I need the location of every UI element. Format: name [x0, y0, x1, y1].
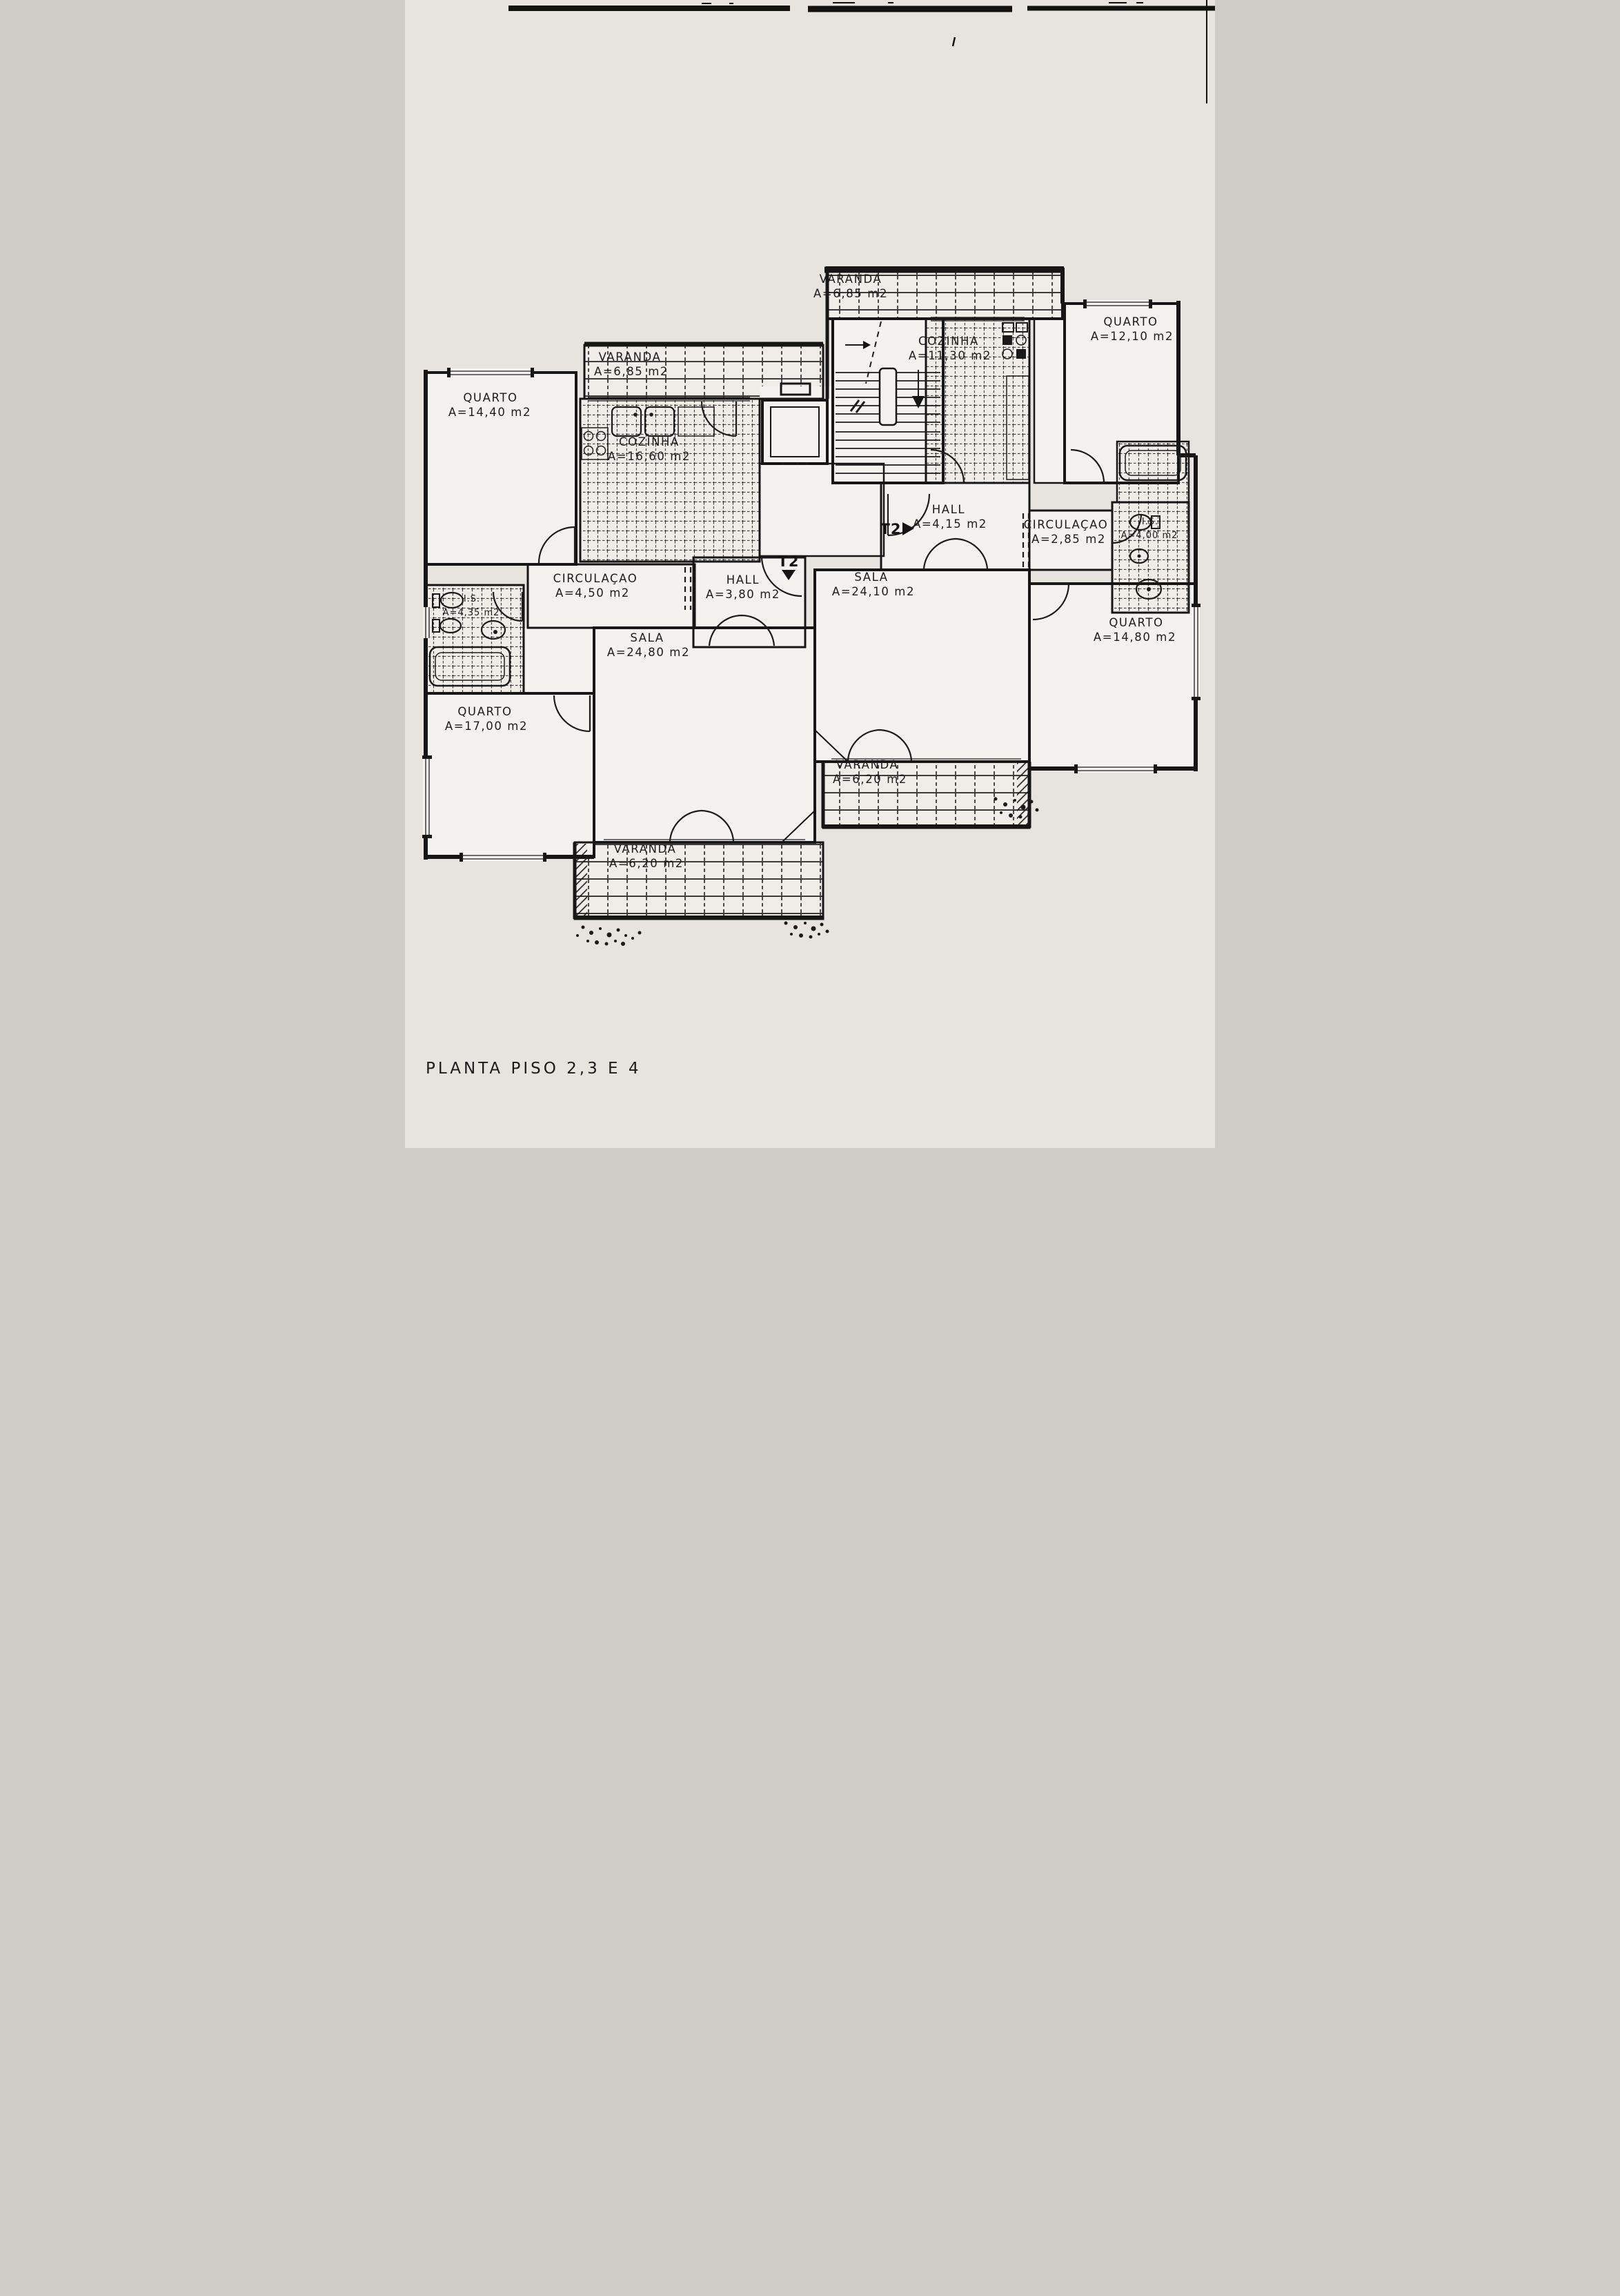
page-title: PLANTA PISO 2,3 E 4	[426, 1060, 642, 1078]
faucet-icon	[649, 413, 653, 417]
stove-icon	[1002, 335, 1012, 345]
window-quarto-14-80-bottom	[1074, 764, 1157, 773]
drain-icon	[493, 630, 497, 634]
paper-background	[405, 0, 1215, 1148]
wall-hatch	[1017, 763, 1028, 827]
sink-icon	[1016, 349, 1026, 359]
balcony-varanda-mid	[823, 762, 1029, 828]
wall-hatch	[576, 844, 587, 918]
window-is-left	[423, 607, 431, 638]
floor-landing	[760, 464, 884, 556]
t2-marker-left: T2	[778, 553, 800, 570]
floor-corridor-left	[524, 628, 594, 693]
faucet-icon	[633, 413, 638, 417]
window-quarto-14-40-top	[447, 368, 534, 377]
window-quarto-17-00-bottom	[460, 853, 546, 862]
balcony-varanda-bottom	[575, 842, 823, 919]
scanned-floor-plan-page: VARANDAA=6,85 m2 COZINHAA=11,30 m2 QUART…	[405, 0, 1215, 1148]
t2-marker-right: T2	[880, 521, 902, 537]
drain-icon	[1147, 587, 1151, 591]
floor-plan-svg: VARANDAA=6,85 m2 COZINHAA=11,30 m2 QUART…	[405, 0, 1215, 1148]
window-quarto-14-80-right	[1192, 604, 1201, 700]
window-quarto-17-00-left	[422, 755, 432, 838]
drain-icon	[1138, 555, 1141, 558]
window-quarto-12-10-top	[1083, 299, 1152, 308]
floor-cozinha-16-60	[580, 399, 760, 562]
floor-duct	[1034, 319, 1065, 483]
floor-sala-24-10	[815, 570, 1029, 762]
